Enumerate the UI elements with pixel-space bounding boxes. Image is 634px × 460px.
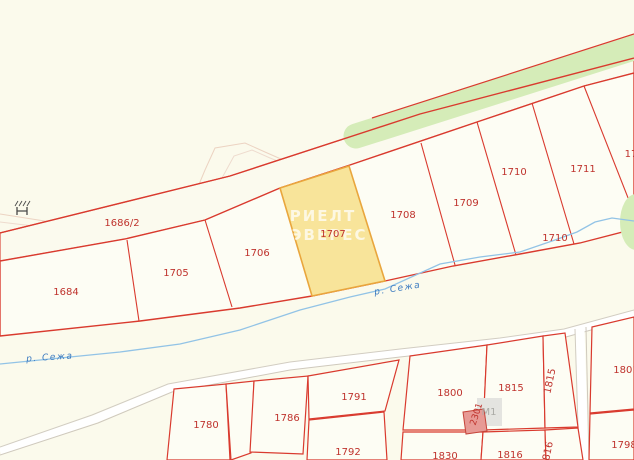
label-1801: 1801	[613, 365, 634, 376]
label-1709: 1709	[453, 198, 478, 209]
label-building-m1: М1	[482, 407, 497, 418]
parcel-1798[interactable]	[589, 410, 634, 460]
map-canvas[interactable]: РИЕЛТ ЭВЕРЕС	[0, 0, 634, 460]
label-1705: 1705	[163, 268, 188, 279]
label-1710-lower: 1710	[542, 233, 567, 244]
label-1815: 1815	[498, 383, 523, 394]
label-1711: 1711	[570, 164, 595, 175]
label-1792: 1792	[335, 447, 360, 458]
label-1791: 1791	[341, 392, 366, 403]
watermark-line1: РИЕЛТ	[290, 207, 356, 225]
far-right-block	[589, 317, 634, 460]
label-1816: 1816	[497, 450, 522, 460]
label-1706: 1706	[244, 248, 269, 259]
label-17-clipped: 17	[625, 149, 634, 160]
label-1780: 1780	[193, 420, 218, 431]
label-1830: 1830	[432, 451, 457, 460]
label-1710: 1710	[501, 167, 526, 178]
label-1786: 1786	[274, 413, 299, 424]
label-1800: 1800	[437, 388, 462, 399]
label-1684: 1684	[53, 287, 78, 298]
label-1707: 1707	[320, 229, 345, 240]
label-1686-2: 1686/2	[104, 218, 139, 229]
label-1708: 1708	[390, 210, 415, 221]
label-1798: 1798	[611, 440, 634, 451]
cadastral-map: РИЕЛТ ЭВЕРЕС	[0, 0, 634, 460]
